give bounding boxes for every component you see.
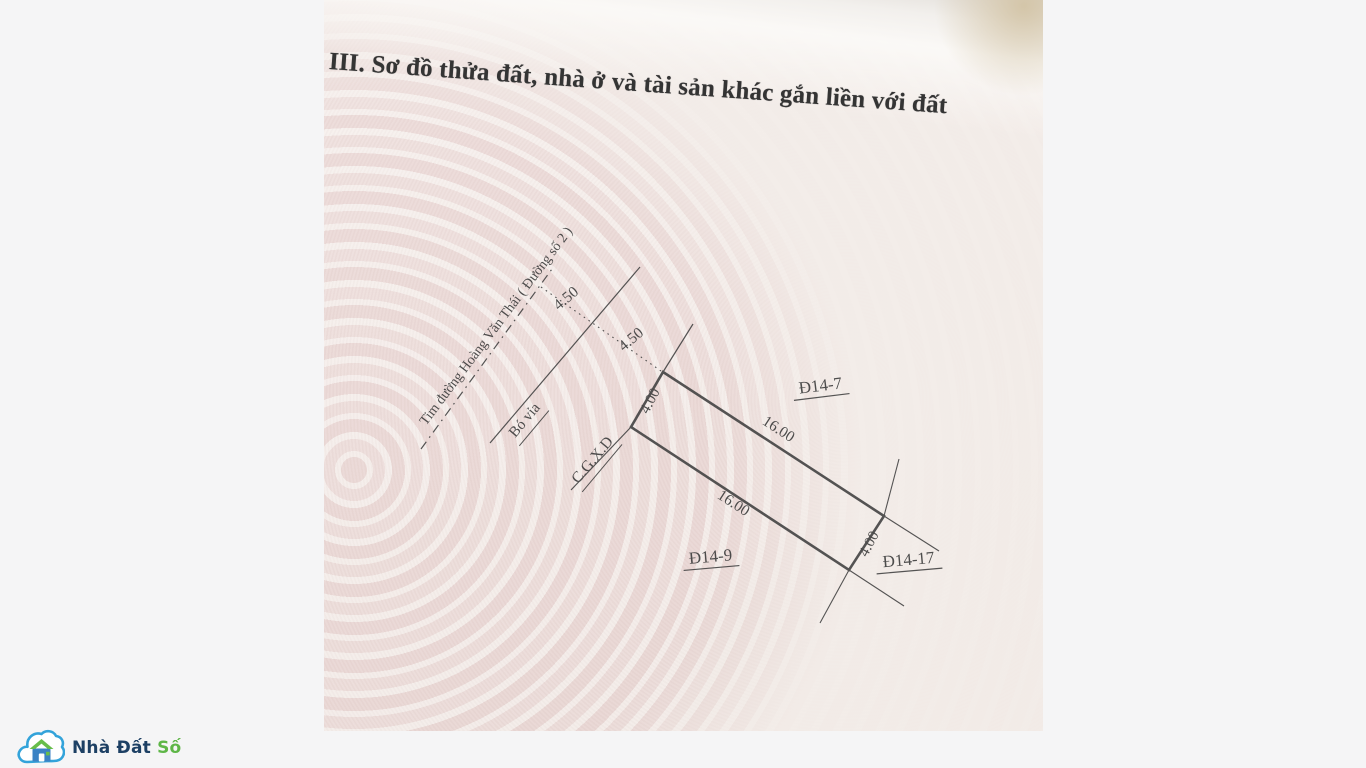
parcel-label-bottom: Đ14-9	[688, 545, 733, 568]
side-boundary-ext-lower	[820, 570, 849, 623]
plot-diagram: Tim đường Hoàng Văn Thái ( Đường số 2 ) …	[324, 0, 1043, 731]
parcel-label-top: Đ14-7	[798, 373, 844, 397]
dim-curb-to-boundary: 4.50	[615, 324, 647, 355]
brand-name: Nhà Đất Số	[72, 738, 181, 758]
cloud-house-icon	[15, 728, 65, 768]
brand-watermark: Nhà Đất Số	[15, 727, 181, 768]
brand-name-green: Số	[157, 738, 181, 758]
dim-frontage-left: 4.00	[637, 386, 663, 417]
certificate-photo: III. Sơ đồ thửa đất, nhà ở và tài sản kh…	[324, 0, 1043, 731]
road-label: Tim đường Hoàng Văn Thái ( Đường số 2 )	[417, 224, 576, 428]
brand-name-dark: Nhà Đất	[72, 738, 151, 758]
curb-label: Bó vỉa	[506, 400, 544, 441]
boundary-ext-bottom-right	[849, 570, 904, 606]
side-boundary-ext-upper	[884, 459, 899, 516]
setback-line-upper	[663, 324, 693, 372]
screen: { "page": { "background_color": "#f5f5f6…	[0, 0, 1366, 768]
plot-outline	[631, 372, 884, 570]
dim-centerline-to-curb: 4.50	[550, 283, 582, 314]
parcel-label-right: Đ14-17	[882, 548, 936, 571]
boundary-ext-top-right	[884, 516, 939, 551]
dim-frontage-right: 4.00	[856, 529, 882, 560]
dim-depth-bottom: 16.00	[714, 487, 753, 520]
dim-depth-top: 16.00	[759, 413, 798, 446]
